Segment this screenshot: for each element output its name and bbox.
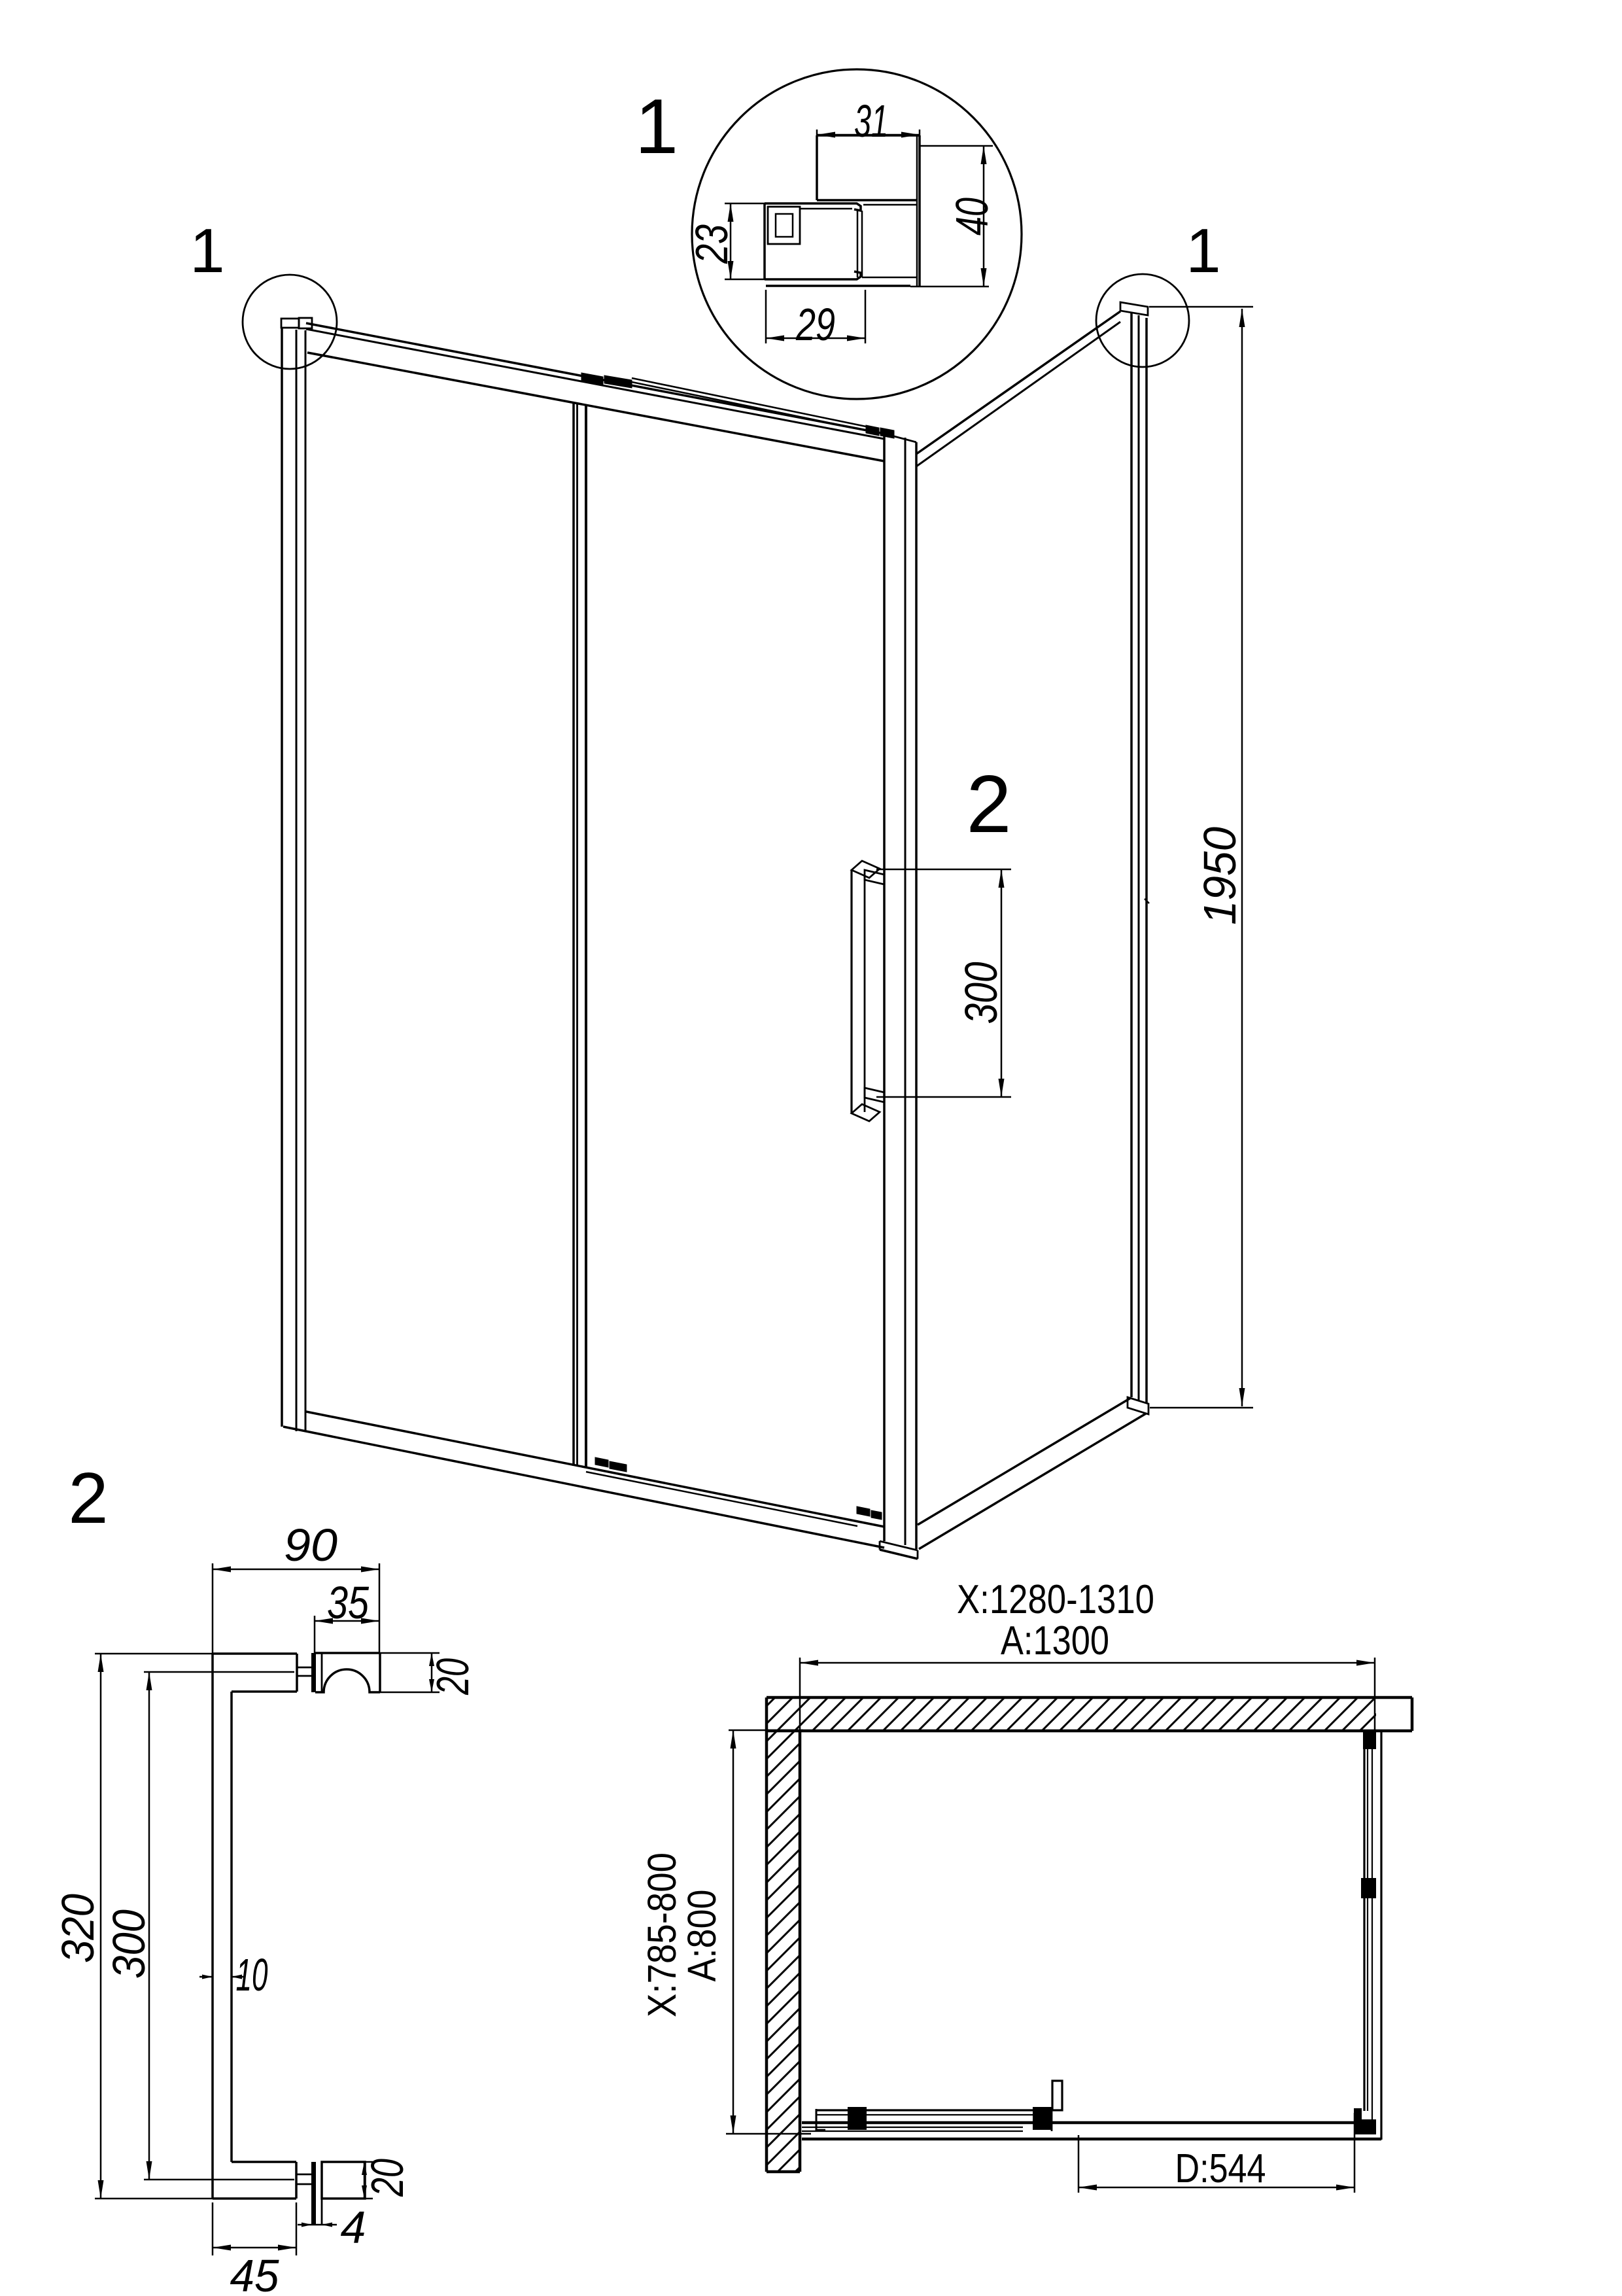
svg-text:20: 20	[427, 1658, 478, 1696]
svg-text:23: 23	[686, 224, 737, 264]
svg-text:20: 20	[362, 2159, 413, 2197]
svg-text:29: 29	[795, 299, 835, 350]
svg-text:1: 1	[1186, 216, 1220, 286]
svg-text:D:544: D:544	[1175, 2146, 1266, 2191]
svg-text:35: 35	[327, 1577, 370, 1628]
svg-text:A:1300: A:1300	[1001, 1618, 1109, 1663]
svg-text:2: 2	[967, 759, 1012, 850]
svg-text:A:800: A:800	[680, 1890, 724, 1982]
svg-text:320: 320	[52, 1894, 103, 1963]
svg-text:1: 1	[190, 216, 224, 286]
svg-text:10: 10	[236, 1949, 268, 2000]
svg-text:40: 40	[946, 198, 997, 235]
svg-text:300: 300	[103, 1909, 154, 1979]
svg-text:2: 2	[68, 1458, 108, 1539]
svg-text:1950: 1950	[1194, 827, 1245, 925]
svg-text:90: 90	[284, 1520, 337, 1571]
svg-text:X:785-800: X:785-800	[640, 1852, 684, 2017]
svg-text:45: 45	[230, 2250, 280, 2296]
svg-text:X:1280-1310: X:1280-1310	[957, 1577, 1154, 1622]
svg-text:4: 4	[341, 2202, 366, 2253]
svg-text:300: 300	[956, 962, 1007, 1024]
svg-text:31: 31	[854, 96, 888, 147]
svg-text:1: 1	[635, 83, 678, 170]
